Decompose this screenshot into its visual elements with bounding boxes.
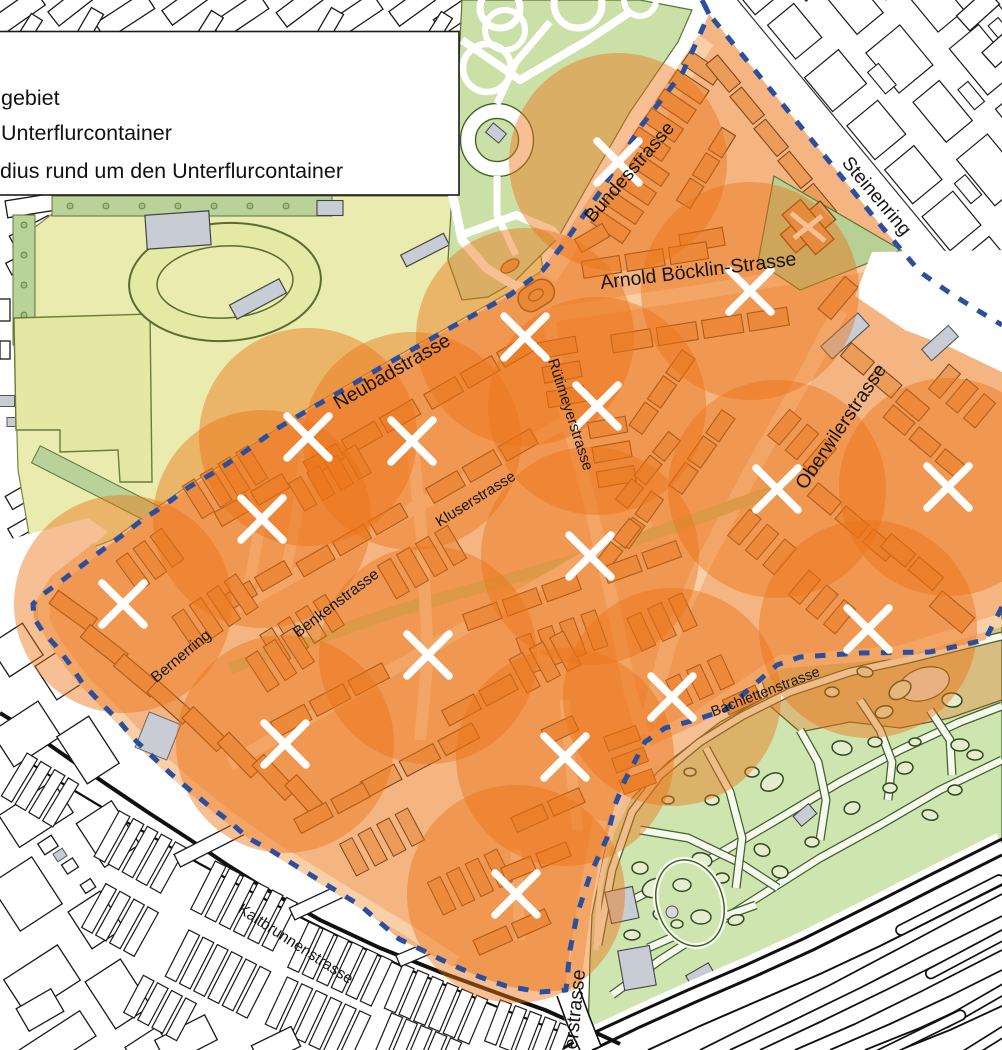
- svg-text:gebiet: gebiet: [1, 86, 60, 110]
- svg-text:dius rund um den Unterflurcont: dius rund um den Unterflurcontainer: [0, 159, 343, 183]
- svg-text:Unterflurcontainer: Unterflurcontainer: [1, 121, 172, 145]
